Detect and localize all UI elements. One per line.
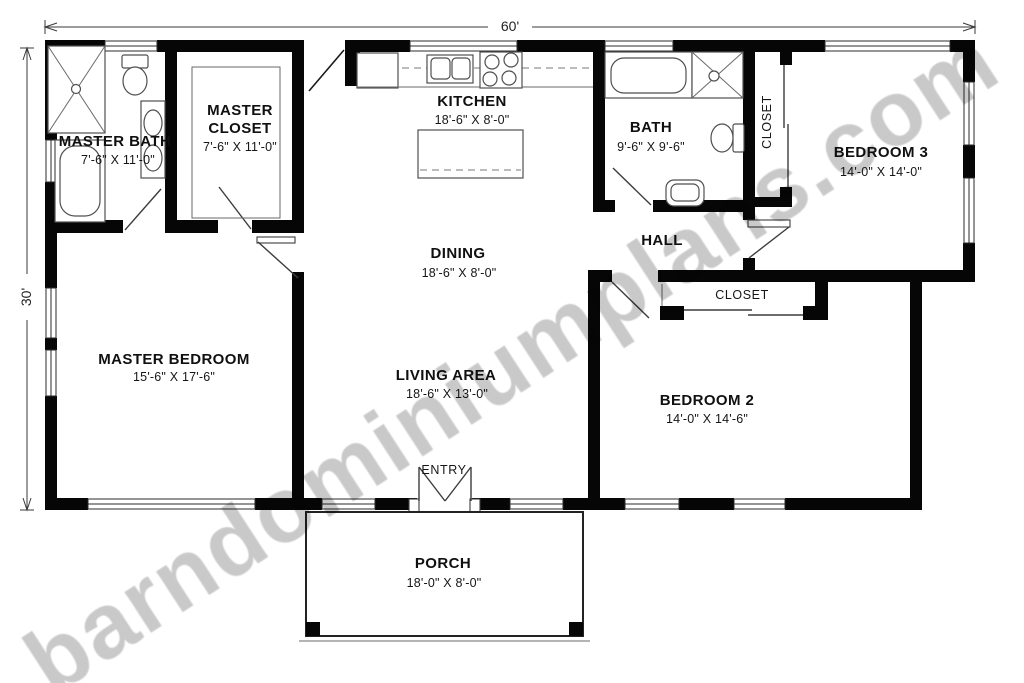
porch-post bbox=[569, 622, 583, 636]
overall-depth-label: 30' bbox=[18, 288, 34, 306]
master-bedroom-door-panel bbox=[257, 237, 295, 243]
label-living-area: LIVING AREA bbox=[396, 367, 497, 384]
dims-living-area: 18'-6" X 13'-0" bbox=[406, 387, 488, 401]
bedroom3-door-panel bbox=[748, 220, 790, 227]
interior-walls bbox=[45, 40, 975, 510]
toilet bbox=[122, 55, 148, 95]
bath-fixtures bbox=[605, 52, 744, 206]
master-closet-door bbox=[219, 187, 251, 229]
shower bbox=[692, 52, 743, 98]
label-master-bath: MASTER BATH bbox=[59, 133, 171, 150]
dims-bedroom2: 14'-0" X 14'-6" bbox=[666, 412, 748, 426]
label-bedroom2: BEDROOM 2 bbox=[660, 392, 754, 409]
dims-master-closet: 7'-6" X 11'-0" bbox=[203, 140, 277, 154]
kitchen-island bbox=[418, 130, 523, 178]
master-bedroom-door bbox=[258, 242, 298, 278]
floor-plan-drawing: 60' 30' bbox=[0, 0, 1024, 683]
floor-plan-page: 60' 30' bbox=[0, 0, 1024, 683]
bedroom2-door bbox=[612, 282, 649, 318]
label-hall-closet: CLOSET bbox=[760, 95, 774, 149]
overall-width-label: 60' bbox=[501, 18, 519, 34]
dims-bath: 9'-6" X 9'-6" bbox=[617, 140, 685, 154]
label-master-bedroom: MASTER BEDROOM bbox=[98, 351, 249, 368]
cooktop bbox=[480, 52, 522, 88]
pedestal-sink bbox=[666, 180, 704, 206]
label-kitchen: KITCHEN bbox=[437, 93, 506, 110]
label-bedroom3: BEDROOM 3 bbox=[834, 144, 928, 161]
label-hall: HALL bbox=[641, 232, 683, 249]
dims-bedroom3: 14'-0" X 14'-0" bbox=[840, 165, 922, 179]
label-dining: DINING bbox=[431, 245, 486, 262]
dims-master-bath: 7'-6" X 11'-0" bbox=[81, 153, 155, 167]
dimension-top: 60' bbox=[45, 18, 975, 34]
dims-master-bedroom: 15'-6" X 17'-6" bbox=[133, 370, 215, 384]
kitchen-sink bbox=[427, 55, 473, 83]
porch-post bbox=[306, 622, 320, 636]
label-bedroom2-closet: CLOSET bbox=[715, 288, 769, 302]
bath-door bbox=[613, 168, 651, 205]
dims-kitchen: 18'-6" X 8'-0" bbox=[435, 113, 510, 127]
label-porch: PORCH bbox=[415, 555, 471, 572]
bathtub bbox=[605, 52, 692, 98]
toilet bbox=[711, 124, 744, 152]
dims-porch: 18'-0" X 8'-0" bbox=[407, 576, 482, 590]
dims-dining: 18'-6" X 8'-0" bbox=[422, 266, 497, 280]
label-bath: BATH bbox=[630, 119, 672, 136]
bedroom3-door bbox=[749, 227, 789, 258]
label-master-closet-1: MASTER bbox=[207, 102, 273, 119]
dimension-left: 30' bbox=[18, 48, 34, 510]
master-bath-door bbox=[125, 189, 161, 230]
label-entry: ENTRY bbox=[421, 463, 466, 477]
refrigerator bbox=[357, 53, 398, 88]
label-master-closet-2: CLOSET bbox=[208, 120, 271, 137]
shower bbox=[48, 46, 105, 133]
